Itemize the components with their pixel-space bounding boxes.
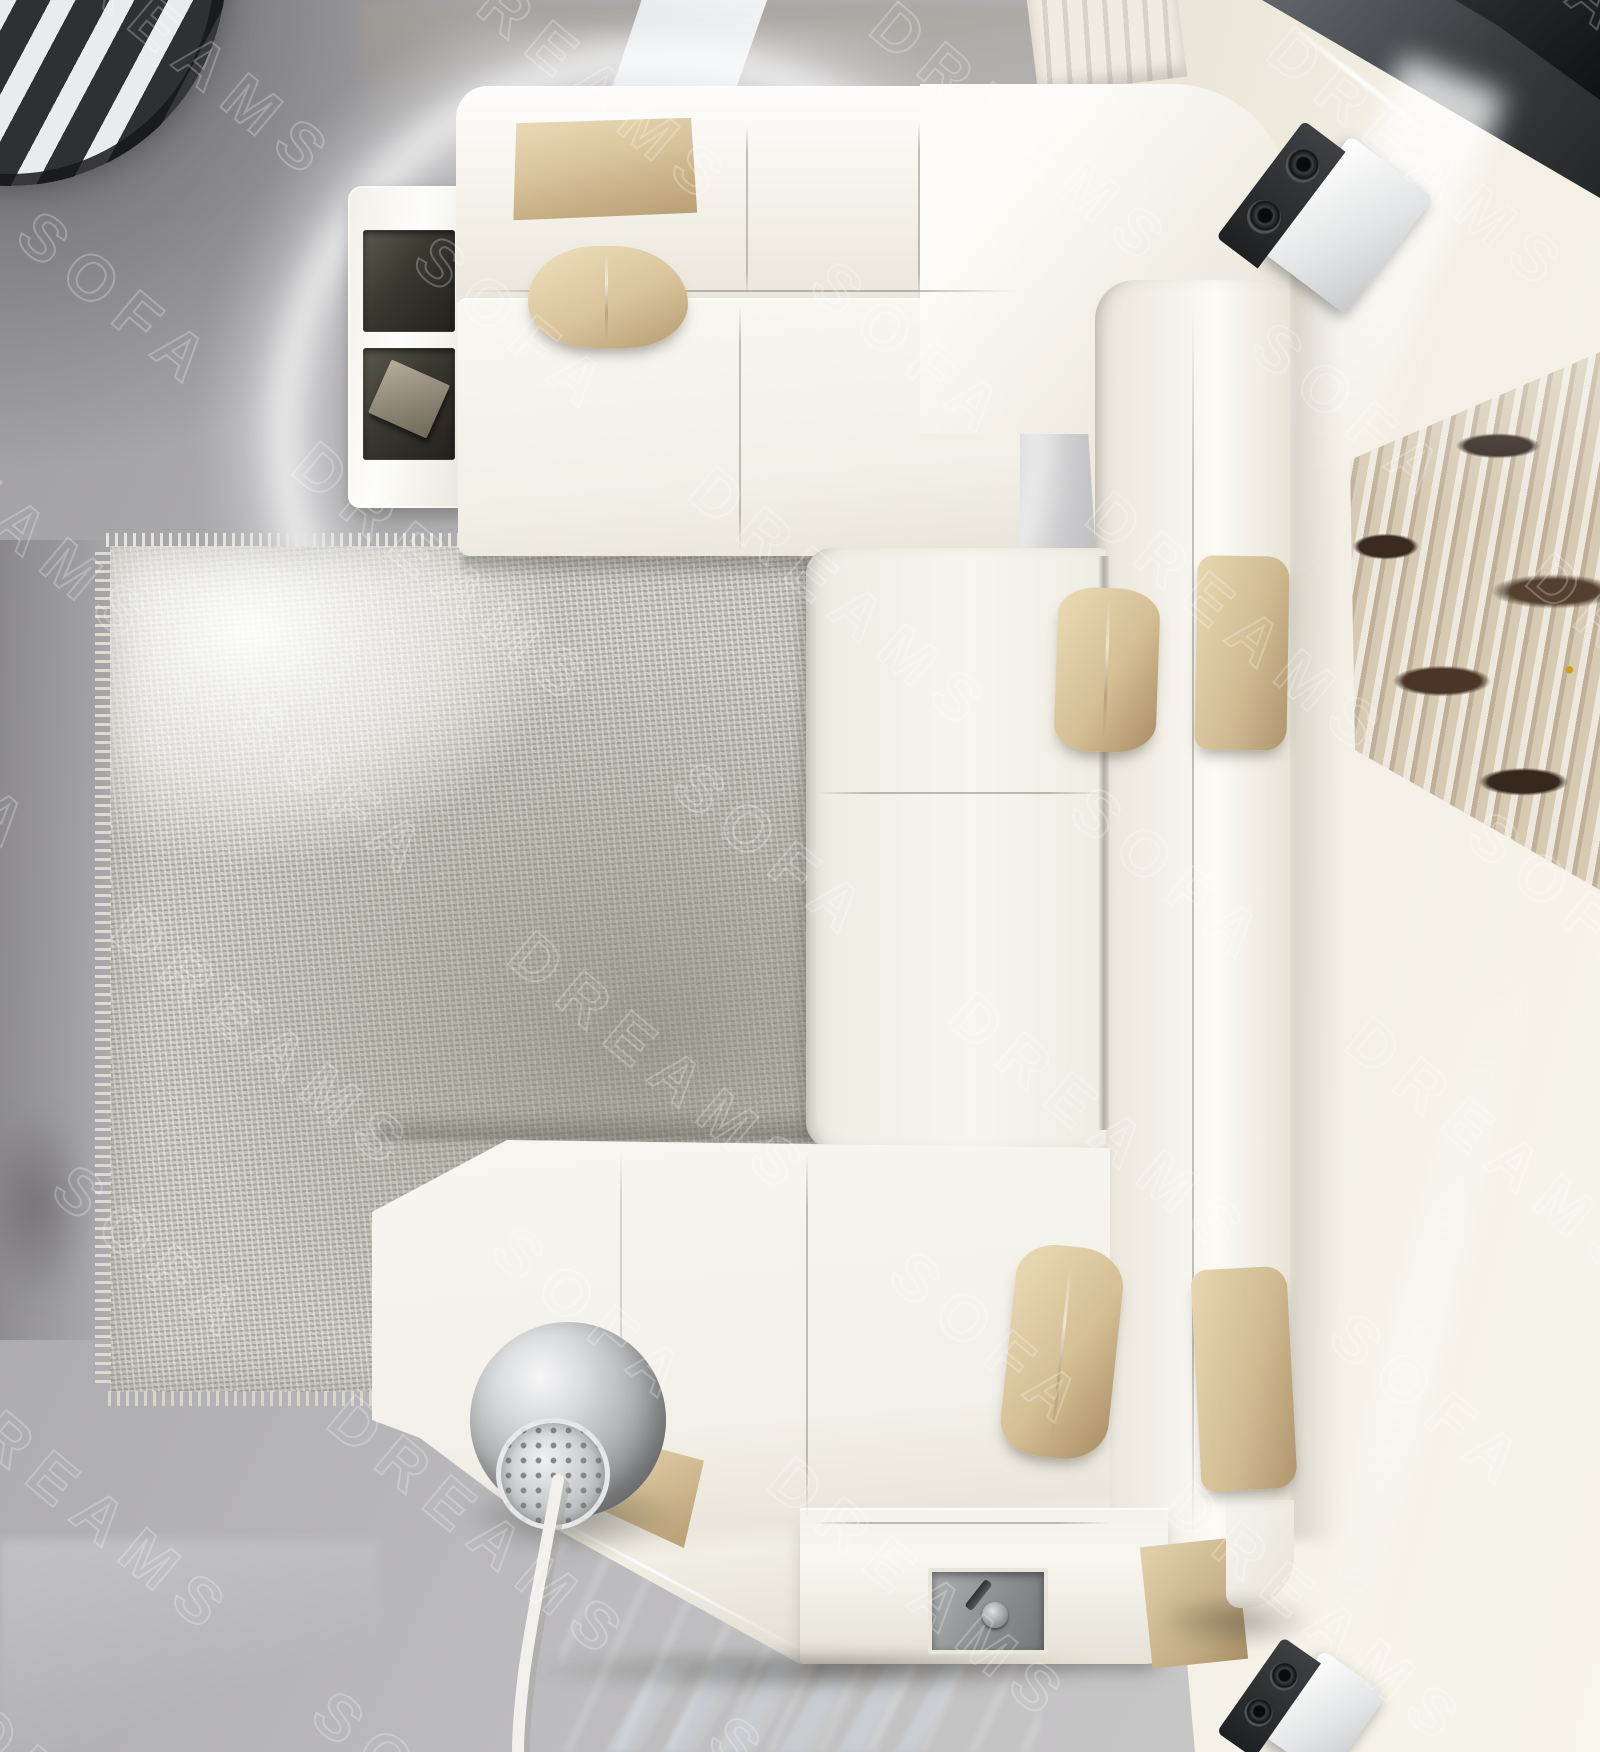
speaker-driver [1264, 1657, 1303, 1696]
floor-reflection-smudge [0, 1105, 92, 1305]
leather-seam [746, 126, 748, 296]
pillow-crease [1051, 1263, 1073, 1440]
pillow-top [528, 246, 688, 348]
shadow-sofa-wall [1288, 240, 1340, 1540]
speaker-driver [1279, 142, 1327, 190]
pillow-crease [605, 254, 608, 340]
storage-console [348, 186, 470, 508]
media-panel-knob [982, 1602, 1008, 1628]
leather-seam [806, 1152, 808, 1518]
leather-seam [739, 306, 741, 552]
pillow-right-lower [997, 1241, 1127, 1463]
floor-lamp-cable [480, 1450, 680, 1752]
leather-seam [816, 792, 1102, 794]
living-room-top-view: SOFA DREAMS SOFA DREAMS SOFA DREAMS SOFA… [0, 0, 1600, 1752]
console-glass-compartment [363, 230, 455, 332]
rug-fringe-left [95, 552, 111, 1388]
rug-fringe-top [106, 533, 462, 547]
headrest-pad-right-lower [1190, 1266, 1297, 1493]
pillow-crease [1103, 601, 1111, 739]
leather-seam [1192, 310, 1194, 1540]
floor-glow-bottom-left [0, 1540, 380, 1752]
leather-seam [812, 1522, 1110, 1524]
headrest-pad-top [511, 118, 698, 221]
leather-seam [918, 122, 920, 300]
console-glass-compartment [363, 348, 455, 460]
speaker-driver [1240, 193, 1288, 241]
headrest-pad-right-upper [1194, 555, 1289, 751]
pillow-right-upper [1053, 586, 1161, 753]
media-panel [928, 1568, 1048, 1654]
magazine [368, 359, 450, 438]
speaker-driver [1239, 1693, 1278, 1732]
rug-fringe-bottom [108, 1391, 394, 1406]
